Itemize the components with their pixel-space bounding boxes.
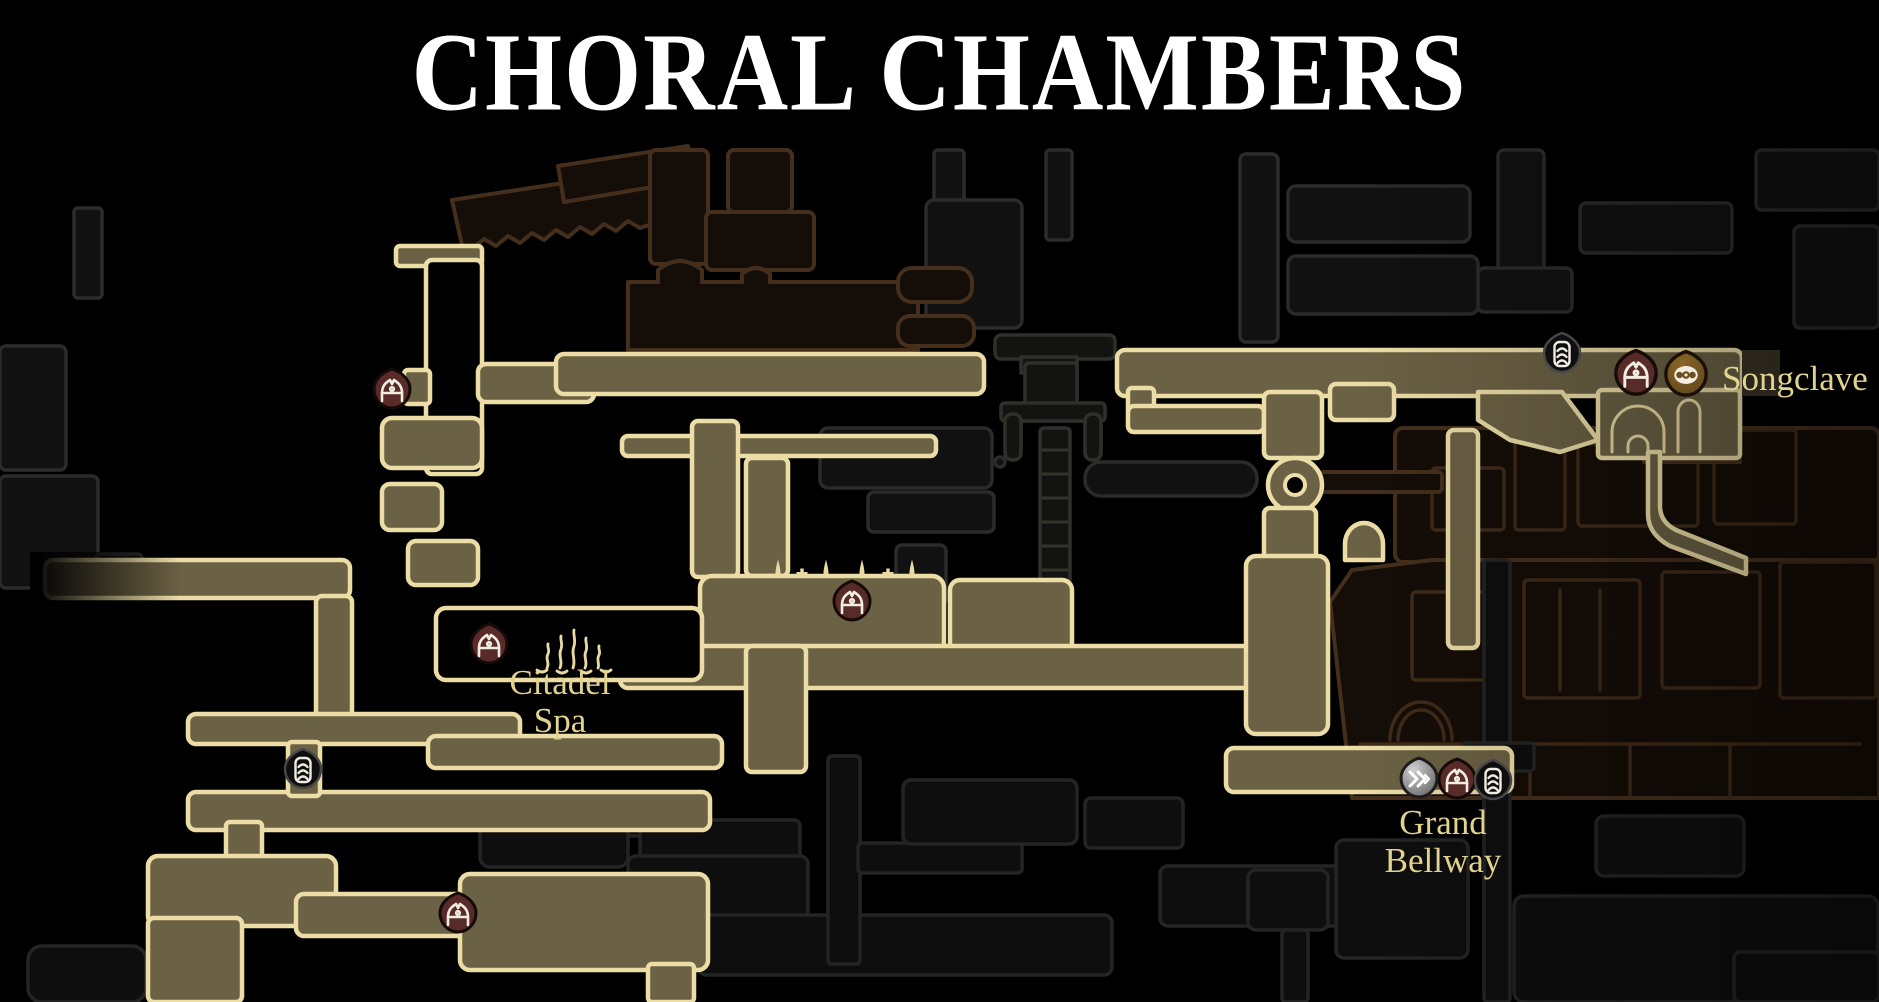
bench-icon[interactable] (1616, 350, 1656, 394)
bench-icon[interactable] (834, 581, 870, 620)
location-label: Spa (534, 701, 587, 740)
fast-travel-icon[interactable] (1401, 758, 1437, 797)
location-label: Bellway (1385, 841, 1502, 880)
bench-icon[interactable] (440, 893, 476, 932)
bench-icon[interactable] (374, 369, 410, 408)
location-label: Grand (1399, 803, 1487, 842)
left-fade (30, 552, 180, 608)
location-label: Citadel (509, 663, 610, 702)
bench-icon[interactable] (1439, 759, 1475, 798)
bench-icon[interactable] (471, 624, 507, 663)
songclave-vendor-icon[interactable] (1666, 351, 1706, 395)
game-map-screen: SongclaveCitadelSpaGrandBellway CHORAL C… (0, 0, 1879, 1002)
map-canvas[interactable]: SongclaveCitadelSpaGrandBellway (0, 0, 1879, 1002)
map-title: CHORAL CHAMBERS (0, 10, 1879, 137)
spires-decoration (775, 560, 914, 577)
location-label: Songclave (1722, 359, 1868, 398)
